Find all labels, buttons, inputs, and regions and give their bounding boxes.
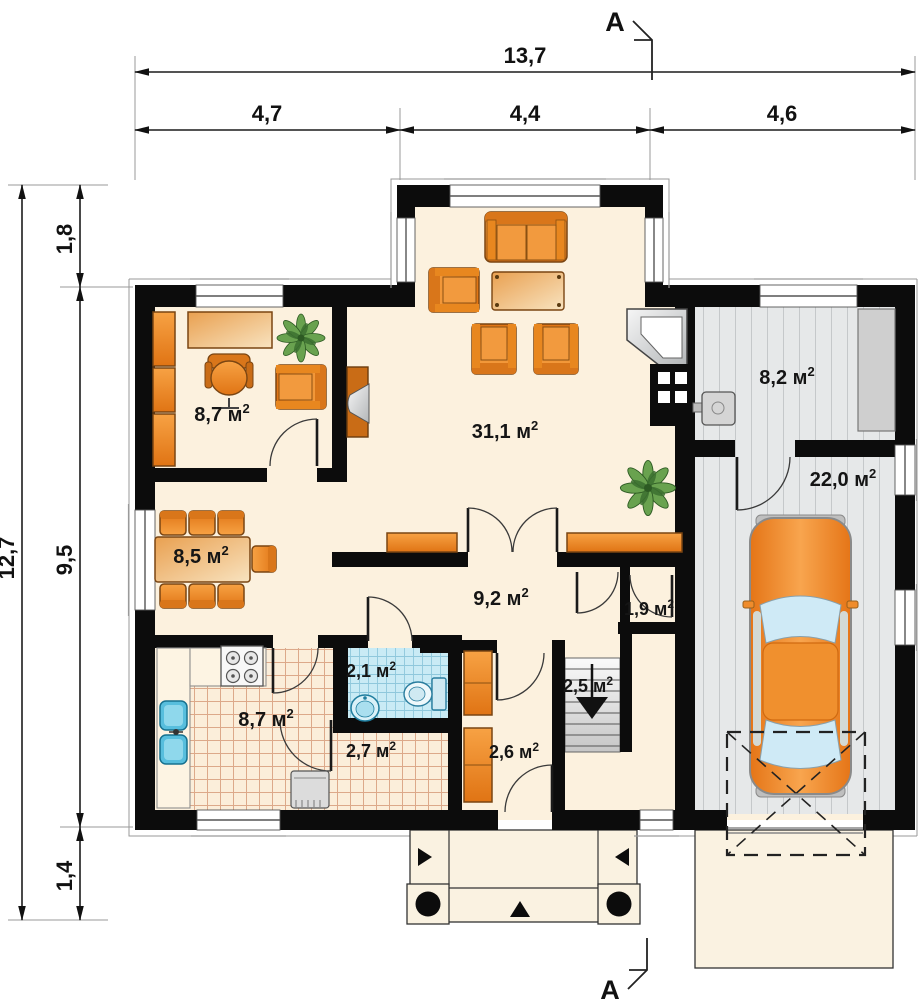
chair	[160, 584, 186, 608]
garage-label: 22,0 м2	[810, 466, 877, 491]
plant	[620, 460, 675, 515]
understair-window	[634, 810, 679, 836]
dim-label-seg2: 4,4	[510, 101, 541, 126]
storage-label: 8,2 м2	[759, 364, 814, 389]
workbench	[858, 309, 895, 431]
office-window	[190, 279, 289, 307]
staircase	[565, 658, 620, 752]
dim-label-total-height: 12,7	[0, 537, 19, 580]
section-marker-bottom: A	[600, 938, 647, 1000]
hall-label: 9,2 м2	[473, 585, 528, 610]
washbasin	[351, 695, 379, 721]
dim-label-seg1: 4,7	[252, 101, 283, 126]
stove	[221, 646, 263, 686]
plant	[277, 314, 325, 362]
floor-plan-page: 8,7 м2 31,1 м2 8,2 м2 22,0 м2 8,5 м2 9,2…	[0, 0, 918, 1000]
corridor-label: 2,7 м2	[346, 739, 396, 761]
bookshelf	[153, 312, 175, 366]
bathroom-label: 2,1 м2	[346, 659, 396, 681]
dining-window	[129, 504, 156, 616]
coffee-table	[492, 272, 564, 310]
armchair	[472, 324, 516, 374]
bay-top-window	[444, 179, 606, 207]
garage-window-upper	[895, 439, 917, 501]
desk	[188, 312, 272, 348]
dim-label-seg3: 4,6	[767, 101, 798, 126]
armchair	[429, 268, 479, 312]
water-heater	[702, 392, 735, 425]
car	[743, 515, 858, 797]
storage-window	[754, 279, 863, 307]
bay-left-window	[391, 212, 415, 288]
office-label: 8,7 м2	[194, 401, 249, 426]
kitchen-label: 8,7 м2	[238, 706, 293, 731]
dim-label-vseg2: 9,5	[52, 545, 77, 576]
chair	[189, 511, 215, 535]
boiler	[291, 771, 329, 808]
dining-room-label: 8,5 м2	[173, 543, 228, 568]
chair	[218, 584, 244, 608]
sideboard	[387, 533, 457, 552]
staircase-label: 2,5 м2	[563, 674, 613, 696]
driveway	[695, 830, 893, 968]
armchair	[534, 324, 578, 374]
chair	[218, 511, 244, 535]
bookshelf	[153, 414, 175, 466]
floor-plan-drawing: 8,7 м2 31,1 м2 8,2 м2 22,0 м2 8,5 м2 9,2…	[0, 0, 918, 1000]
chimney-flues	[650, 364, 695, 426]
sofa	[485, 212, 567, 262]
chair	[160, 511, 186, 535]
section-letter-top: A	[605, 7, 625, 37]
dim-label-total-width: 13,7	[504, 43, 547, 68]
section-marker-top: A	[605, 7, 652, 80]
dim-label-vseg3: 1,4	[52, 860, 77, 891]
sideboard	[567, 533, 682, 552]
entry-hall-label: 2,6 м2	[489, 740, 539, 762]
dim-label-vseg1: 1,8	[52, 224, 77, 255]
living-room-label: 31,1 м2	[472, 418, 539, 443]
chair	[189, 584, 215, 608]
porch	[407, 830, 640, 924]
chair	[252, 546, 276, 572]
section-letter-bottom: A	[600, 975, 620, 1000]
pantry-label: 1,9 м2	[624, 597, 674, 619]
garage-window-lower	[895, 584, 917, 651]
kitchen-window	[191, 810, 286, 836]
bay-right-window	[645, 212, 669, 288]
bookshelf	[153, 368, 175, 412]
armchair	[276, 365, 326, 409]
